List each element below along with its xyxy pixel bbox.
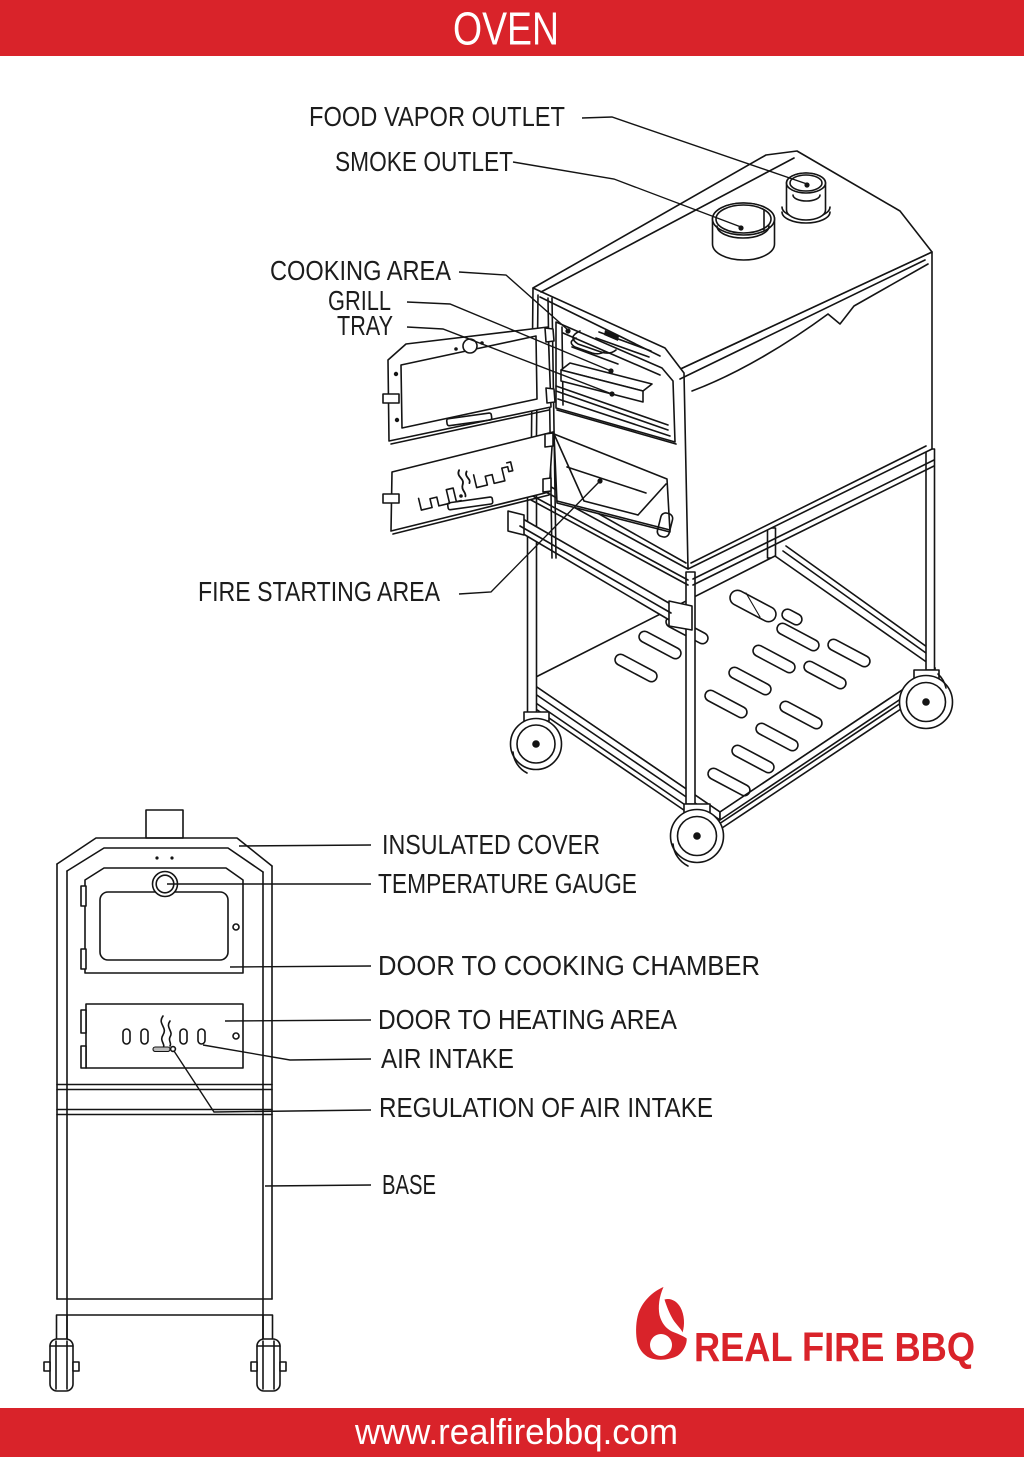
svg-text:BASE: BASE (382, 1169, 436, 1200)
svg-text:TRAY: TRAY (337, 310, 393, 341)
svg-text:INSULATED COVER: INSULATED COVER (382, 829, 600, 860)
svg-text:TEMPERATURE GAUGE: TEMPERATURE GAUGE (378, 868, 637, 899)
svg-text:DOOR TO HEATING AREA: DOOR TO HEATING AREA (378, 1004, 678, 1035)
svg-text:DOOR TO COOKING CHAMBER: DOOR TO COOKING CHAMBER (378, 950, 760, 981)
svg-text:AIR INTAKE: AIR INTAKE (381, 1043, 514, 1074)
svg-text:SMOKE OUTLET: SMOKE OUTLET (335, 146, 513, 177)
svg-text:OVEN: OVEN (453, 3, 559, 55)
svg-text:www.realfirebbq.com: www.realfirebbq.com (354, 1411, 678, 1452)
svg-text:REGULATION OF AIR INTAKE: REGULATION OF AIR INTAKE (379, 1092, 713, 1123)
svg-text:REAL FIRE BBQ: REAL FIRE BBQ (694, 1324, 975, 1370)
svg-text:COOKING AREA: COOKING AREA (270, 255, 452, 286)
svg-text:FOOD VAPOR OUTLET: FOOD VAPOR OUTLET (309, 101, 565, 132)
svg-text:FIRE STARTING AREA: FIRE STARTING AREA (198, 576, 441, 607)
